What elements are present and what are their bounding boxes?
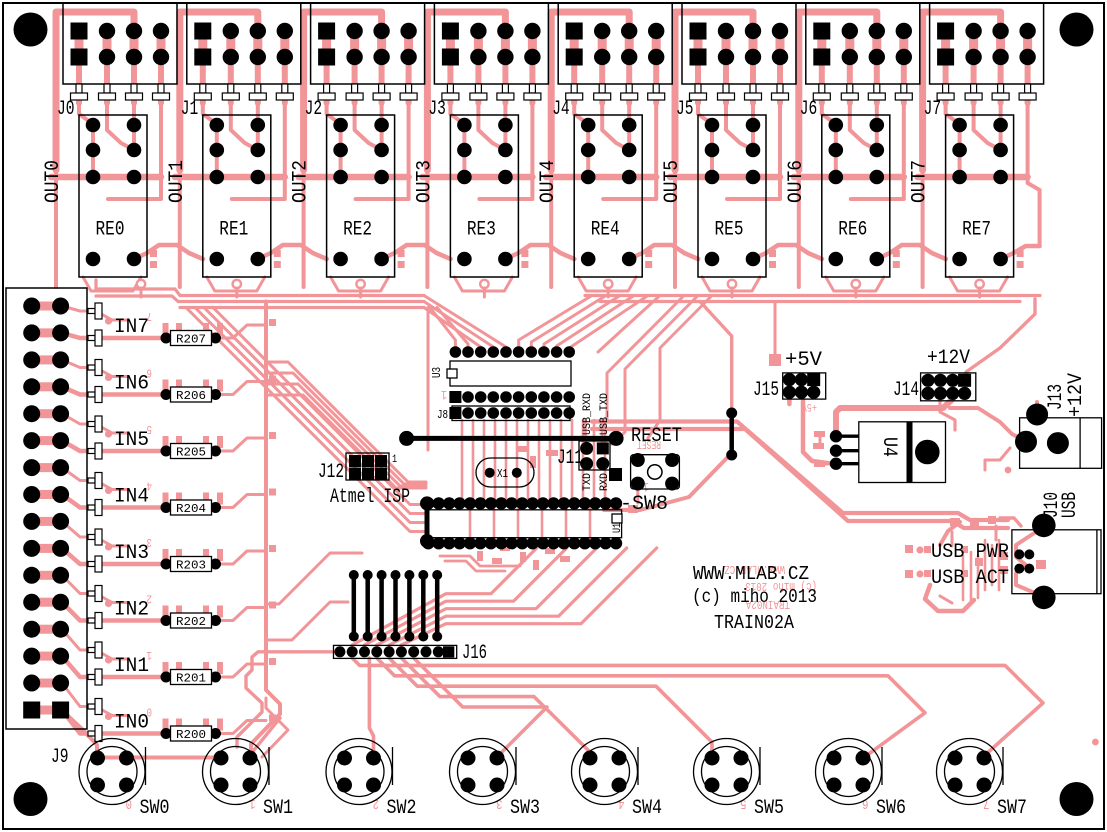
svg-text:OUT4: OUT4 [537,160,560,203]
svg-text:SW3: SW3 [510,797,540,820]
svg-text:J11: J11 [557,447,583,470]
svg-text:USB ACT: USB ACT [931,567,1009,590]
svg-text:X1: X1 [497,467,508,481]
svg-text:R205: R205 [176,446,206,460]
svg-text:J3: J3 [428,98,446,121]
svg-text:R200: R200 [176,728,206,742]
svg-text:R206: R206 [176,389,206,403]
svg-text:IN3: IN3 [114,542,149,565]
svg-text:IN2: IN2 [114,599,149,622]
svg-text:SW1: SW1 [263,797,293,820]
svg-text:SW5: SW5 [754,797,784,820]
svg-text:RE5: RE5 [715,219,744,242]
svg-text:USB_RXD: USB_RXD [582,393,594,435]
svg-text:U1: U1 [612,523,624,533]
svg-text:IN1: IN1 [114,655,149,678]
svg-text:1: 1 [441,387,447,402]
svg-text:+5V: +5V [802,400,817,412]
svg-text:IN0: IN0 [114,712,149,735]
svg-text:J1: J1 [181,98,199,121]
svg-text:J0: J0 [57,98,75,121]
svg-text:R203: R203 [176,559,206,573]
svg-text:IN5: IN5 [114,429,149,452]
svg-text:7: 7 [983,795,989,811]
svg-text:TXD: TXD [582,473,594,491]
svg-text:OUT2: OUT2 [290,160,313,203]
svg-text:RE1: RE1 [219,219,248,242]
svg-text:TRAIN02A: TRAIN02A [714,612,795,634]
svg-text:(c) miho 2013: (c) miho 2013 [692,586,817,608]
svg-text:R204: R204 [176,502,206,516]
svg-text:J8: J8 [437,408,448,422]
svg-text:+12V: +12V [927,347,970,370]
svg-text:J5: J5 [676,98,694,121]
svg-text:SW7: SW7 [997,797,1027,820]
svg-text:J9: J9 [51,746,69,769]
svg-text:J12: J12 [318,461,344,484]
svg-text:SW0: SW0 [140,797,170,820]
svg-text:OUT7: OUT7 [909,160,932,203]
svg-text:5: 5 [740,795,746,811]
svg-text:J15: J15 [753,379,779,402]
svg-text:+12V: +12V [1065,373,1088,417]
svg-text:J2: J2 [305,98,323,121]
svg-text:J7: J7 [924,98,942,121]
svg-text:OUT1: OUT1 [166,160,189,203]
svg-text:+5V: +5V [785,349,822,372]
svg-text:R202: R202 [176,615,206,629]
svg-text:1: 1 [249,795,255,811]
svg-text:2: 2 [373,795,379,811]
svg-text:OUT3: OUT3 [413,160,436,203]
svg-text:J6: J6 [800,98,818,121]
svg-text:-SW8: -SW8 [620,493,668,516]
svg-text:J14: J14 [893,379,919,402]
svg-text:OUT0: OUT0 [42,160,65,203]
svg-text:J16: J16 [462,642,487,665]
svg-text:RE0: RE0 [96,219,125,242]
svg-text:6: 6 [862,795,868,811]
svg-text:Atmel ISP: Atmel ISP [330,486,410,509]
svg-text:J4: J4 [552,98,570,121]
svg-text:RE3: RE3 [467,219,496,242]
svg-text:IN6: IN6 [114,373,149,396]
svg-text:OUT5: OUT5 [661,160,684,203]
svg-text:4: 4 [618,795,624,811]
svg-text:SW4: SW4 [632,797,662,820]
svg-text:U3: U3 [430,367,444,378]
svg-text:R201: R201 [176,672,206,686]
svg-text:USB_TXD: USB_TXD [599,393,611,435]
svg-text:RESET: RESET [631,425,682,448]
svg-text:RE6: RE6 [838,219,867,242]
svg-text:R207: R207 [176,333,206,347]
svg-text:IN4: IN4 [114,486,149,509]
svg-text:USB: USB [1059,492,1082,518]
svg-text:USB PWR: USB PWR [931,541,1009,564]
svg-text:RE4: RE4 [591,219,620,242]
svg-text:U4: U4 [877,437,900,457]
svg-text:WWW.MLAB.CZ: WWW.MLAB.CZ [693,563,809,585]
svg-text:RE7: RE7 [962,219,991,242]
svg-text:SW2: SW2 [387,797,417,820]
svg-text:RE2: RE2 [343,219,372,242]
svg-text:3: 3 [496,795,502,811]
svg-text:1: 1 [392,454,397,466]
svg-text:SW6: SW6 [876,797,906,820]
svg-text:0: 0 [126,795,132,811]
svg-text:OUT6: OUT6 [785,160,808,203]
svg-text:IN7: IN7 [114,316,149,339]
